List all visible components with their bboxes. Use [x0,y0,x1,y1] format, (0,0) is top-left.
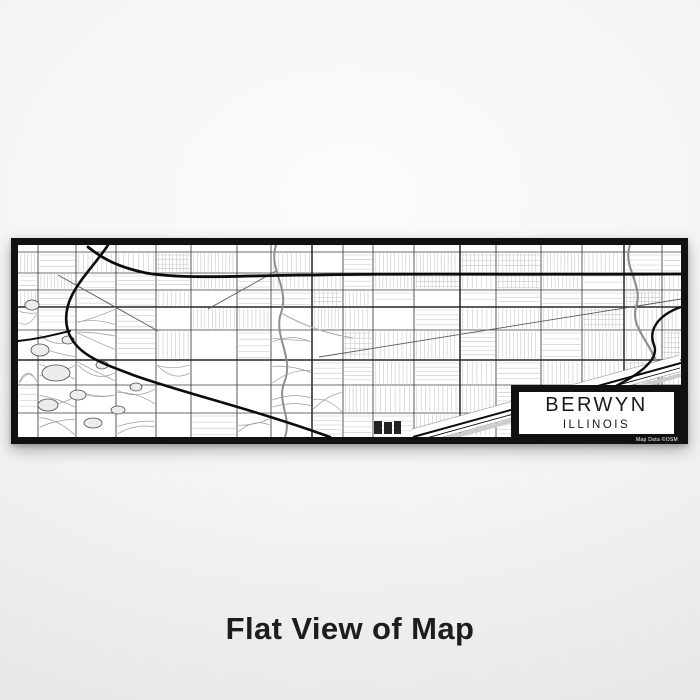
caption-text: Flat View of Map [0,611,700,647]
map-print: BERWYN ILLINOIS Map Data ©OSM [11,238,688,444]
city-label-inner: BERWYN ILLINOIS [519,392,674,434]
state-name: ILLINOIS [563,419,630,431]
city-label-box: BERWYN ILLINOIS [511,385,682,438]
city-name: BERWYN [545,395,647,416]
map-data-credit: Map Data ©OSM [636,437,678,444]
